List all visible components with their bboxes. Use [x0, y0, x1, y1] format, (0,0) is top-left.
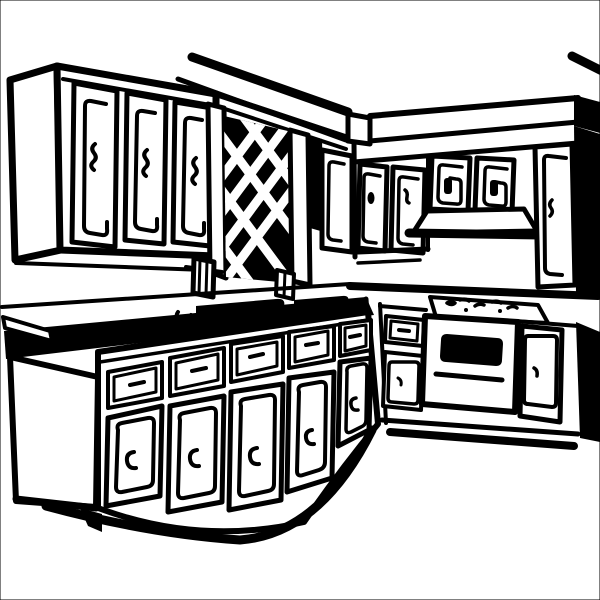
window-right-jamb: [290, 130, 310, 285]
upper-left-door-1: [72, 83, 117, 247]
upper-right-tall-door: [535, 144, 575, 287]
right-side-black-panel: [574, 126, 600, 296]
soffit-corner-block: [348, 114, 370, 144]
support-stripes: [284, 272, 285, 297]
door-handle-block: [490, 180, 498, 196]
oven-window: [440, 334, 503, 366]
door-knob-dot: [368, 192, 375, 204]
oven: [422, 316, 518, 412]
door-panel: [535, 144, 575, 287]
oven-front: [422, 316, 518, 412]
base-right-door-b: [520, 326, 562, 422]
base-right-unit-a: [383, 316, 424, 410]
base-unit-2: [168, 348, 224, 512]
drawer-handle-dash: [399, 330, 409, 331]
upper-left-door-2: [125, 93, 166, 244]
base-unit-5: [338, 320, 371, 446]
upper-right-door-4: [475, 158, 514, 212]
burner-dot-1: [464, 308, 468, 312]
base-left-side-panel: [10, 357, 98, 507]
sill-support-left: [193, 258, 214, 297]
range-hood: [409, 209, 541, 235]
support-body: [193, 258, 214, 297]
door-handle-squiggle: [550, 200, 553, 216]
corner-divider-line: [354, 143, 355, 257]
upper-right-door-2: [391, 167, 425, 253]
sill-support-right: [276, 270, 294, 299]
upper-left-side-panel: [10, 66, 61, 260]
bottom-band-line: [358, 249, 428, 252]
upper-door-beside-window: [322, 150, 352, 252]
upper-cabinets-left: [10, 66, 216, 270]
base-unit-1: [106, 362, 162, 506]
door-handle-mark: [405, 190, 409, 203]
door-handle-block: [444, 178, 452, 194]
burner-dot-2: [498, 309, 502, 313]
hood-bottom-bar: [409, 233, 541, 235]
door-panel: [391, 167, 425, 253]
window-left-jamb: [208, 104, 226, 278]
upper-right-door-3: [430, 156, 470, 211]
door-panel: [322, 150, 352, 252]
base-right-black-side: [576, 322, 600, 442]
kitchen-clipart-illustration: [0, 0, 600, 600]
base-unit-3: [229, 336, 283, 510]
door-panel: [72, 83, 117, 247]
drawer-handle-dash: [306, 343, 318, 345]
drawer-handle-dash: [350, 335, 360, 337]
base-unit-4: [287, 326, 334, 492]
upper-right-door-1: [358, 164, 387, 251]
